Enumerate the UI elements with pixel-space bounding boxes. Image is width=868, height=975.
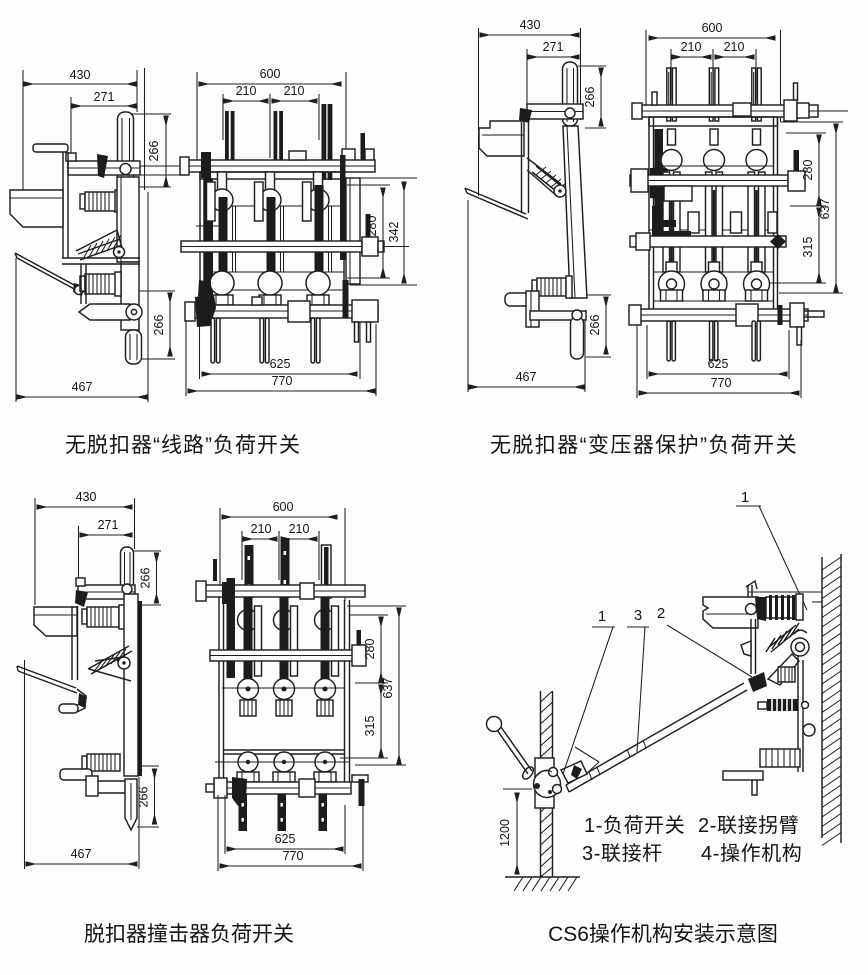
svg-text:210: 210 bbox=[289, 522, 310, 536]
svg-text:430: 430 bbox=[76, 490, 97, 504]
svg-text:637: 637 bbox=[818, 199, 832, 220]
svg-text:637: 637 bbox=[381, 678, 395, 699]
svg-text:266: 266 bbox=[583, 87, 597, 108]
svg-text:625: 625 bbox=[708, 357, 729, 371]
svg-text:315: 315 bbox=[801, 237, 815, 258]
svg-text:4-操作机构: 4-操作机构 bbox=[701, 842, 802, 865]
svg-text:3: 3 bbox=[634, 607, 642, 624]
svg-text:467: 467 bbox=[516, 370, 537, 384]
svg-text:430: 430 bbox=[70, 68, 91, 82]
svg-text:600: 600 bbox=[260, 67, 281, 81]
svg-text:342: 342 bbox=[387, 222, 401, 243]
svg-text:2: 2 bbox=[657, 605, 665, 622]
svg-text:430: 430 bbox=[520, 18, 541, 32]
svg-text:1: 1 bbox=[598, 608, 606, 625]
svg-text:266: 266 bbox=[588, 315, 602, 336]
svg-text:2-联接拐臂: 2-联接拐臂 bbox=[698, 814, 799, 837]
svg-text:CS6操作机构安装示意图: CS6操作机构安装示意图 bbox=[548, 923, 778, 946]
svg-text:1-负荷开关: 1-负荷开关 bbox=[584, 814, 685, 837]
svg-text:210: 210 bbox=[236, 84, 257, 98]
svg-text:210: 210 bbox=[724, 40, 745, 54]
svg-text:600: 600 bbox=[702, 21, 723, 35]
svg-text:600: 600 bbox=[273, 500, 294, 514]
svg-text:无脱扣器“变压器保护”负荷开关: 无脱扣器“变压器保护”负荷开关 bbox=[490, 434, 798, 457]
svg-text:467: 467 bbox=[72, 380, 93, 394]
svg-text:210: 210 bbox=[284, 84, 305, 98]
svg-text:625: 625 bbox=[275, 832, 296, 846]
svg-text:271: 271 bbox=[543, 40, 564, 54]
svg-text:271: 271 bbox=[98, 518, 119, 532]
svg-text:625: 625 bbox=[270, 357, 291, 371]
svg-text:280: 280 bbox=[365, 216, 379, 237]
svg-text:脱扣器撞击器负荷开关: 脱扣器撞击器负荷开关 bbox=[84, 923, 294, 946]
svg-text:266: 266 bbox=[152, 315, 166, 336]
svg-text:271: 271 bbox=[94, 90, 115, 104]
svg-text:770: 770 bbox=[283, 849, 304, 863]
svg-text:280: 280 bbox=[363, 639, 377, 660]
svg-text:315: 315 bbox=[363, 716, 377, 737]
svg-text:210: 210 bbox=[251, 522, 272, 536]
svg-text:3-联接杆: 3-联接杆 bbox=[582, 842, 663, 865]
svg-text:1: 1 bbox=[741, 489, 749, 506]
svg-text:770: 770 bbox=[272, 374, 293, 388]
svg-text:266: 266 bbox=[137, 787, 151, 808]
svg-text:210: 210 bbox=[681, 40, 702, 54]
svg-text:266: 266 bbox=[147, 141, 161, 162]
svg-text:1200: 1200 bbox=[498, 819, 512, 847]
svg-text:467: 467 bbox=[71, 847, 92, 861]
svg-text:280: 280 bbox=[801, 160, 815, 181]
svg-text:无脱扣器“线路”负荷开关: 无脱扣器“线路”负荷开关 bbox=[65, 434, 301, 457]
svg-text:266: 266 bbox=[139, 568, 153, 589]
svg-text:770: 770 bbox=[711, 376, 732, 390]
